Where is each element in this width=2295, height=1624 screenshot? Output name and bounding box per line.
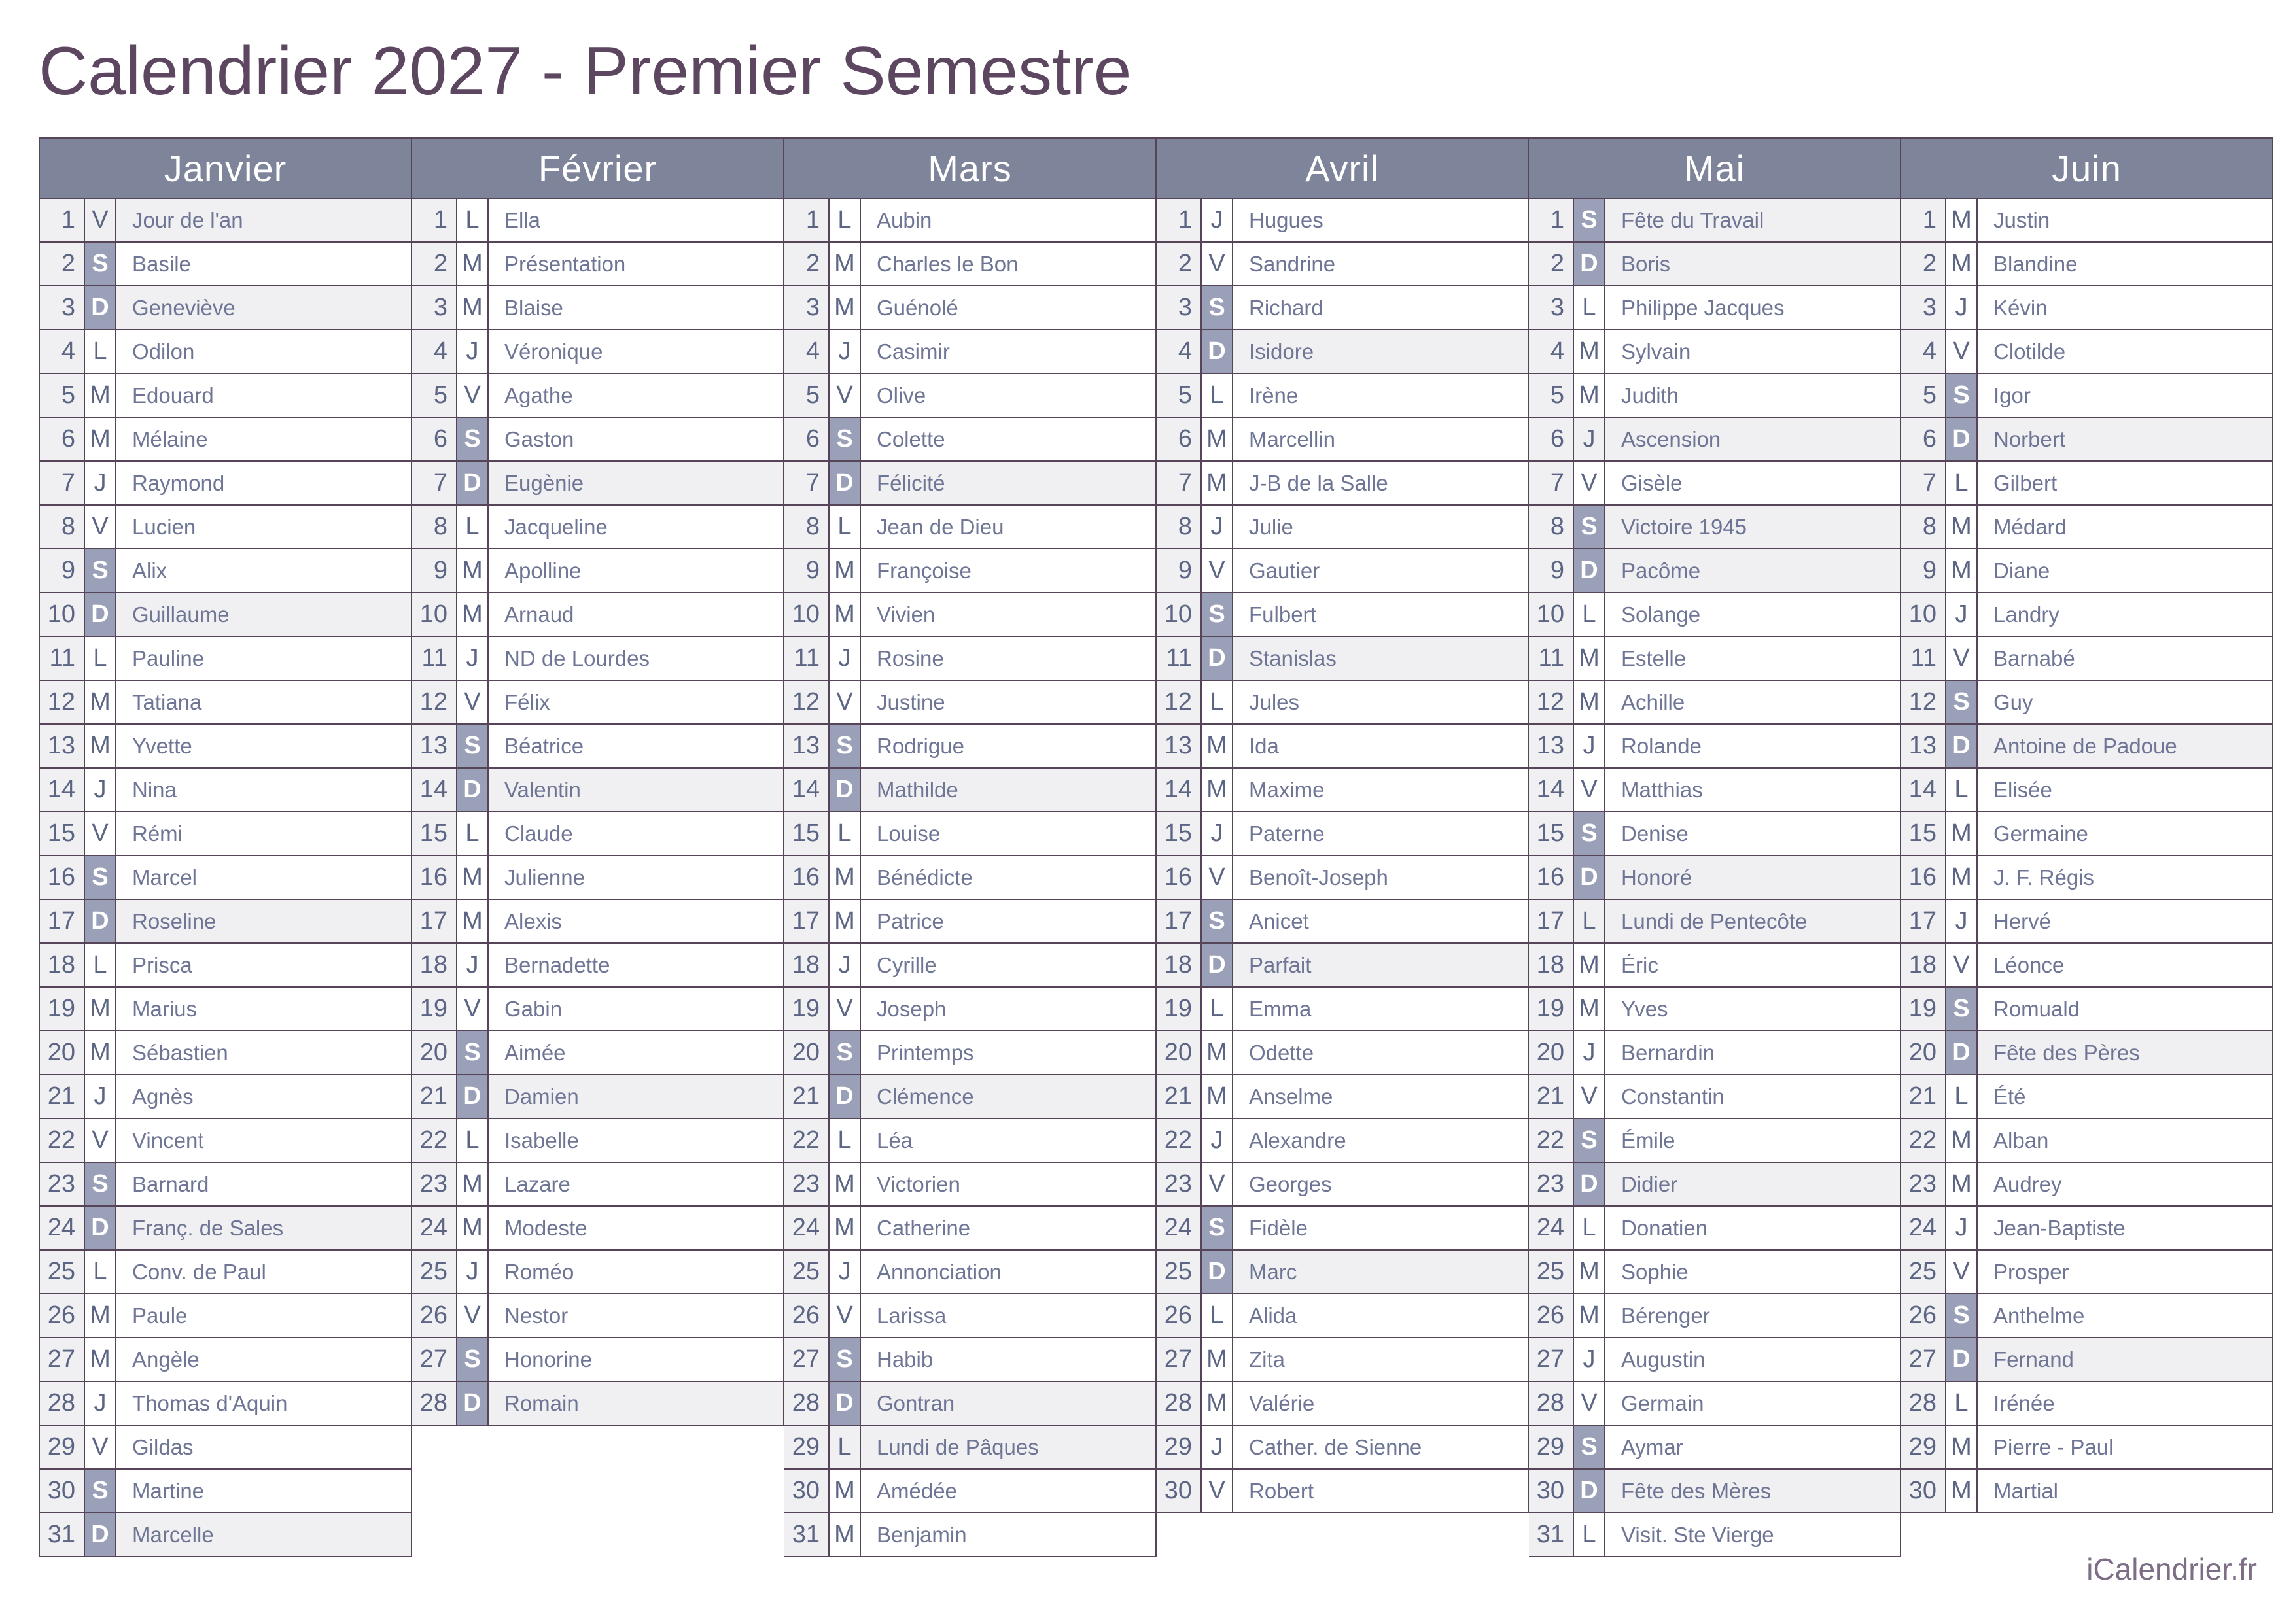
day-row: 23VGeorges	[1157, 1163, 1529, 1207]
weekday-letter: M	[1946, 549, 1978, 593]
weekday-letter: M	[830, 1513, 861, 1557]
saint-name: Patrice	[861, 900, 1157, 944]
day-number: 1	[1529, 199, 1574, 243]
weekend-letter-badge: S	[85, 1470, 116, 1513]
weekday-letter: M	[1202, 769, 1233, 812]
day-row: 15LClaude	[412, 812, 784, 856]
day-number: 12	[1901, 681, 1946, 725]
saint-name: Léonce	[1978, 944, 2273, 988]
saint-name: ND de Lourdes	[489, 637, 784, 681]
day-number: 23	[1529, 1163, 1574, 1207]
day-number: 5	[40, 374, 85, 418]
day-number: 7	[1157, 462, 1202, 506]
saint-name: Françoise	[861, 549, 1157, 593]
day-number: 3	[412, 286, 457, 330]
day-row: 28MValérie	[1157, 1382, 1529, 1426]
day-row: 22JAlexandre	[1157, 1119, 1529, 1163]
day-row: 26MBérenger	[1529, 1294, 1901, 1338]
day-row: 23SBarnard	[40, 1163, 412, 1207]
weekend-letter-badge: D	[1574, 1470, 1605, 1513]
day-number: 6	[1901, 418, 1946, 462]
day-row: 9VGautier	[1157, 549, 1529, 593]
day-number: 17	[1901, 900, 1946, 944]
weekday-letter: M	[1946, 1426, 1978, 1470]
day-row: 8SVictoire 1945	[1529, 506, 1901, 549]
day-row: 10SFulbert	[1157, 593, 1529, 637]
day-row: 25VProsper	[1901, 1251, 2273, 1294]
day-row: 23MAudrey	[1901, 1163, 2273, 1207]
day-number: 16	[784, 856, 830, 900]
day-number: 20	[1901, 1031, 1946, 1075]
weekday-letter: M	[830, 1163, 861, 1207]
weekday-letter: M	[85, 1294, 116, 1338]
day-row: 12MAchille	[1529, 681, 1901, 725]
weekday-letter: V	[830, 988, 861, 1031]
day-row: 4LOdilon	[40, 330, 412, 374]
day-row: 13SRodrigue	[784, 725, 1157, 769]
day-number: 22	[1157, 1119, 1202, 1163]
day-row: 3JKévin	[1901, 286, 2273, 330]
weekday-letter: M	[830, 856, 861, 900]
day-row: 11JRosine	[784, 637, 1157, 681]
weekday-letter: M	[1946, 1163, 1978, 1207]
day-number: 9	[40, 549, 85, 593]
weekend-letter-badge: D	[1574, 856, 1605, 900]
saint-name: Geneviève	[116, 286, 412, 330]
weekday-letter: M	[1202, 462, 1233, 506]
weekend-letter-badge: S	[1574, 199, 1605, 243]
day-number: 24	[1529, 1207, 1574, 1251]
day-number: 1	[1157, 199, 1202, 243]
day-number: 28	[784, 1382, 830, 1426]
day-number: 22	[784, 1119, 830, 1163]
day-number: 2	[412, 243, 457, 286]
weekend-letter-badge: D	[1574, 1163, 1605, 1207]
saint-name: Zita	[1233, 1338, 1529, 1382]
day-row: 2MBlandine	[1901, 243, 2273, 286]
day-number: 17	[1529, 900, 1574, 944]
calendar-grid: Janvier1VJour de l'an2SBasile3DGeneviève…	[39, 137, 2273, 1557]
day-row: 3MBlaise	[412, 286, 784, 330]
day-row: 30MMartial	[1901, 1470, 2273, 1513]
day-row: 30SMartine	[40, 1470, 412, 1513]
day-row: 20MOdette	[1157, 1031, 1529, 1075]
day-row: 16MJ. F. Régis	[1901, 856, 2273, 900]
day-row: 6SGaston	[412, 418, 784, 462]
month-header: Février	[412, 139, 784, 199]
day-number: 28	[1529, 1382, 1574, 1426]
weekday-letter: M	[457, 1163, 489, 1207]
month-header: Juin	[1901, 139, 2273, 199]
saint-name: Été	[1978, 1075, 2273, 1119]
day-number: 2	[1157, 243, 1202, 286]
day-number: 3	[1901, 286, 1946, 330]
day-number: 12	[1529, 681, 1574, 725]
saint-name: Rolande	[1605, 725, 1901, 769]
weekday-letter: M	[1202, 1382, 1233, 1426]
weekend-letter-badge: D	[85, 1207, 116, 1251]
day-number: 15	[40, 812, 85, 856]
day-row: 21LÉté	[1901, 1075, 2273, 1119]
day-row: 2SBasile	[40, 243, 412, 286]
saint-name: Béatrice	[489, 725, 784, 769]
month-header: Avril	[1157, 139, 1529, 199]
day-number: 8	[1157, 506, 1202, 549]
day-row: 30MAmédée	[784, 1470, 1157, 1513]
day-number: 7	[412, 462, 457, 506]
saint-name: Antoine de Padoue	[1978, 725, 2273, 769]
day-row: 28DGontran	[784, 1382, 1157, 1426]
saint-name: Hugues	[1233, 199, 1529, 243]
weekend-letter-badge: D	[1946, 418, 1978, 462]
day-row: 13MYvette	[40, 725, 412, 769]
saint-name: Gilbert	[1978, 462, 2273, 506]
saint-name: Clotilde	[1978, 330, 2273, 374]
weekday-letter: M	[1202, 1338, 1233, 1382]
saint-name: Présentation	[489, 243, 784, 286]
day-row: 18VLéonce	[1901, 944, 2273, 988]
saint-name: Cyrille	[861, 944, 1157, 988]
day-row: 27JAugustin	[1529, 1338, 1901, 1382]
saint-name: Marcel	[116, 856, 412, 900]
day-row: 17LLundi de Pentecôte	[1529, 900, 1901, 944]
day-number: 10	[412, 593, 457, 637]
day-number: 26	[784, 1294, 830, 1338]
day-number: 11	[1157, 637, 1202, 681]
saint-name: Pauline	[116, 637, 412, 681]
saint-name: Blandine	[1978, 243, 2273, 286]
saint-name: Stanislas	[1233, 637, 1529, 681]
day-number: 28	[1901, 1382, 1946, 1426]
day-row: 4JVéronique	[412, 330, 784, 374]
weekday-letter: V	[457, 1294, 489, 1338]
weekend-letter-badge: S	[830, 418, 861, 462]
day-number: 8	[412, 506, 457, 549]
day-number: 24	[784, 1207, 830, 1251]
day-row: 15VRémi	[40, 812, 412, 856]
day-number: 18	[1157, 944, 1202, 988]
weekend-letter-badge: D	[1202, 330, 1233, 374]
weekend-letter-badge: D	[457, 769, 489, 812]
day-row: 23DDidier	[1529, 1163, 1901, 1207]
weekday-letter: M	[457, 900, 489, 944]
day-number: 19	[1529, 988, 1574, 1031]
saint-name: Achille	[1605, 681, 1901, 725]
weekday-letter: J	[85, 462, 116, 506]
weekday-letter: L	[1946, 462, 1978, 506]
day-row: 3MGuénolé	[784, 286, 1157, 330]
weekday-letter: V	[1946, 944, 1978, 988]
saint-name: Arnaud	[489, 593, 784, 637]
weekend-letter-badge: S	[1574, 812, 1605, 856]
saint-name: Estelle	[1605, 637, 1901, 681]
weekday-letter: M	[1574, 988, 1605, 1031]
saint-name: Lazare	[489, 1163, 784, 1207]
weekday-letter: V	[1202, 243, 1233, 286]
day-row: 3LPhilippe Jacques	[1529, 286, 1901, 330]
day-number: 13	[412, 725, 457, 769]
weekend-letter-badge: D	[85, 900, 116, 944]
weekend-letter-badge: D	[830, 462, 861, 506]
weekday-letter: M	[85, 725, 116, 769]
weekday-letter: V	[1202, 1163, 1233, 1207]
weekend-letter-badge: D	[85, 286, 116, 330]
day-row: 17MAlexis	[412, 900, 784, 944]
saint-name: Anselme	[1233, 1075, 1529, 1119]
weekday-letter: J	[1202, 506, 1233, 549]
saint-name: Norbert	[1978, 418, 2273, 462]
day-number: 2	[40, 243, 85, 286]
weekday-letter: V	[85, 1426, 116, 1470]
day-row: 20SAimée	[412, 1031, 784, 1075]
day-row: 25MSophie	[1529, 1251, 1901, 1294]
saint-name: Modeste	[489, 1207, 784, 1251]
day-row: 9DPacôme	[1529, 549, 1901, 593]
weekend-letter-badge: S	[1574, 506, 1605, 549]
weekday-letter: L	[85, 637, 116, 681]
weekday-letter: M	[830, 1470, 861, 1513]
day-row: 17JHervé	[1901, 900, 2273, 944]
weekend-letter-badge: D	[1202, 1251, 1233, 1294]
day-number: 6	[784, 418, 830, 462]
day-row: 29JCather. de Sienne	[1157, 1426, 1529, 1470]
holiday-name: Lundi de Pentecôte	[1605, 900, 1901, 944]
site-credit: iCalendrier.fr	[2086, 1551, 2257, 1587]
day-number: 11	[412, 637, 457, 681]
saint-name: Paterne	[1233, 812, 1529, 856]
day-row: 12LJules	[1157, 681, 1529, 725]
saint-name: Justin	[1978, 199, 2273, 243]
saint-name: Eugènie	[489, 462, 784, 506]
day-number: 26	[1157, 1294, 1202, 1338]
day-number: 6	[1157, 418, 1202, 462]
day-row: 22LIsabelle	[412, 1119, 784, 1163]
saint-name: Romuald	[1978, 988, 2273, 1031]
day-row: 27SHonorine	[412, 1338, 784, 1382]
weekend-letter-badge: D	[830, 1382, 861, 1426]
weekend-letter-badge: S	[85, 243, 116, 286]
day-row: 26VNestor	[412, 1294, 784, 1338]
day-number: 10	[1529, 593, 1574, 637]
day-row: 14MMaxime	[1157, 769, 1529, 812]
saint-name: Jacqueline	[489, 506, 784, 549]
day-row: 20SPrintemps	[784, 1031, 1157, 1075]
saint-name: Tatiana	[116, 681, 412, 725]
saint-name: Marius	[116, 988, 412, 1031]
weekday-letter: M	[85, 988, 116, 1031]
day-row: 6JAscension	[1529, 418, 1901, 462]
weekday-letter: V	[1574, 462, 1605, 506]
weekday-letter: M	[457, 243, 489, 286]
day-row: 22SÉmile	[1529, 1119, 1901, 1163]
day-number: 29	[1529, 1426, 1574, 1470]
day-number: 21	[412, 1075, 457, 1119]
day-row: 30VRobert	[1157, 1470, 1529, 1513]
weekend-letter-badge: D	[1574, 243, 1605, 286]
day-row: 5MJudith	[1529, 374, 1901, 418]
weekday-letter: V	[830, 374, 861, 418]
day-row: 23MLazare	[412, 1163, 784, 1207]
day-row: 24SFidèle	[1157, 1207, 1529, 1251]
day-number: 27	[1157, 1338, 1202, 1382]
day-row: 8VLucien	[40, 506, 412, 549]
weekday-letter: J	[1946, 1207, 1978, 1251]
saint-name: Nestor	[489, 1294, 784, 1338]
day-row: 22MAlban	[1901, 1119, 2273, 1163]
saint-name: Bérenger	[1605, 1294, 1901, 1338]
weekday-letter: V	[1574, 1075, 1605, 1119]
month-header: Janvier	[40, 139, 412, 199]
day-row: 5VOlive	[784, 374, 1157, 418]
weekend-letter-badge: S	[85, 856, 116, 900]
weekday-letter: M	[457, 593, 489, 637]
saint-name: Bernardin	[1605, 1031, 1901, 1075]
saint-name: Gautier	[1233, 549, 1529, 593]
day-number: 26	[1529, 1294, 1574, 1338]
day-number: 12	[784, 681, 830, 725]
weekday-letter: L	[457, 506, 489, 549]
day-number: 5	[784, 374, 830, 418]
weekend-letter-badge: D	[830, 1075, 861, 1119]
day-row: 11LPauline	[40, 637, 412, 681]
saint-name: Alban	[1978, 1119, 2273, 1163]
day-row: 24DFranç. de Sales	[40, 1207, 412, 1251]
day-row: 27MZita	[1157, 1338, 1529, 1382]
saint-name: Guénolé	[861, 286, 1157, 330]
saint-name: Constantin	[1605, 1075, 1901, 1119]
saint-name: Visit. Ste Vierge	[1605, 1513, 1901, 1557]
day-number: 23	[412, 1163, 457, 1207]
day-row: 28JThomas d'Aquin	[40, 1382, 412, 1426]
saint-name: Marcelle	[116, 1513, 412, 1557]
day-row: 4MSylvain	[1529, 330, 1901, 374]
day-number: 17	[40, 900, 85, 944]
saint-name: Nina	[116, 769, 412, 812]
day-number: 13	[1901, 725, 1946, 769]
saint-name: Emma	[1233, 988, 1529, 1031]
day-row: 26SAnthelme	[1901, 1294, 2273, 1338]
weekday-letter: J	[457, 1251, 489, 1294]
weekday-letter: M	[85, 374, 116, 418]
weekday-letter: M	[457, 549, 489, 593]
day-row: 3DGeneviève	[40, 286, 412, 330]
saint-name: Médard	[1978, 506, 2273, 549]
day-row: 9MDiane	[1901, 549, 2273, 593]
saint-name: Jean de Dieu	[861, 506, 1157, 549]
day-number: 14	[40, 769, 85, 812]
weekday-letter: M	[1202, 725, 1233, 769]
day-number: 7	[1529, 462, 1574, 506]
day-number: 3	[40, 286, 85, 330]
saint-name: Agnès	[116, 1075, 412, 1119]
saint-name: Angèle	[116, 1338, 412, 1382]
day-number: 15	[784, 812, 830, 856]
saint-name: Paule	[116, 1294, 412, 1338]
saint-name: Isabelle	[489, 1119, 784, 1163]
saint-name: Parfait	[1233, 944, 1529, 988]
saint-name: Jules	[1233, 681, 1529, 725]
saint-name: Fête des Mères	[1605, 1470, 1901, 1513]
weekday-letter: J	[457, 944, 489, 988]
weekend-letter-badge: S	[1946, 374, 1978, 418]
day-row: 21DDamien	[412, 1075, 784, 1119]
saint-name: Edouard	[116, 374, 412, 418]
day-number: 10	[1901, 593, 1946, 637]
day-number: 24	[412, 1207, 457, 1251]
holiday-name: Jour de l'an	[116, 199, 412, 243]
weekend-letter-badge: S	[1946, 681, 1978, 725]
saint-name: Émile	[1605, 1119, 1901, 1163]
weekday-letter: V	[85, 1119, 116, 1163]
weekday-letter: V	[1202, 856, 1233, 900]
weekday-letter: L	[1946, 1075, 1978, 1119]
saint-name: Vivien	[861, 593, 1157, 637]
day-row: 14DValentin	[412, 769, 784, 812]
saint-name: J. F. Régis	[1978, 856, 2273, 900]
saint-name: Amédée	[861, 1470, 1157, 1513]
day-number: 20	[1529, 1031, 1574, 1075]
day-number: 21	[1157, 1075, 1202, 1119]
saint-name: Casimir	[861, 330, 1157, 374]
weekend-letter-badge: D	[85, 593, 116, 637]
weekday-letter: J	[1202, 812, 1233, 856]
weekday-letter: M	[1946, 1470, 1978, 1513]
day-row: 7LGilbert	[1901, 462, 2273, 506]
day-number: 5	[412, 374, 457, 418]
weekday-letter: L	[830, 199, 861, 243]
day-row: 8LJean de Dieu	[784, 506, 1157, 549]
day-row: 4DIsidore	[1157, 330, 1529, 374]
day-row: 15MGermaine	[1901, 812, 2273, 856]
day-row: 21DClémence	[784, 1075, 1157, 1119]
weekend-letter-badge: S	[457, 725, 489, 769]
day-number: 25	[40, 1251, 85, 1294]
day-row: 12VFélix	[412, 681, 784, 725]
saint-name: Habib	[861, 1338, 1157, 1382]
weekday-letter: L	[1202, 681, 1233, 725]
day-row: 28VGermain	[1529, 1382, 1901, 1426]
day-number: 18	[1901, 944, 1946, 988]
day-row: 12VJustine	[784, 681, 1157, 725]
day-number: 14	[412, 769, 457, 812]
weekday-letter: M	[1574, 681, 1605, 725]
day-number: 12	[40, 681, 85, 725]
weekend-letter-badge: D	[1946, 1338, 1978, 1382]
weekday-letter: J	[1202, 1426, 1233, 1470]
day-number: 6	[1529, 418, 1574, 462]
day-row: 10MVivien	[784, 593, 1157, 637]
day-row: 19MMarius	[40, 988, 412, 1031]
saint-name: Alexandre	[1233, 1119, 1529, 1163]
month-header: Mars	[784, 139, 1157, 199]
saint-name: Justine	[861, 681, 1157, 725]
day-number: 25	[412, 1251, 457, 1294]
day-row: 25DMarc	[1157, 1251, 1529, 1294]
weekday-letter: M	[1202, 418, 1233, 462]
day-row: 19MYves	[1529, 988, 1901, 1031]
weekday-letter: M	[1202, 1031, 1233, 1075]
day-number: 4	[1529, 330, 1574, 374]
saint-name: Robert	[1233, 1470, 1529, 1513]
saint-name: Conv. de Paul	[116, 1251, 412, 1294]
day-number: 27	[1901, 1338, 1946, 1382]
day-number: 30	[1529, 1470, 1574, 1513]
saint-name: Fernand	[1978, 1338, 2273, 1382]
day-row: 1JHugues	[1157, 199, 1529, 243]
day-number: 14	[1529, 769, 1574, 812]
saint-name: Blaise	[489, 286, 784, 330]
day-number: 27	[40, 1338, 85, 1382]
